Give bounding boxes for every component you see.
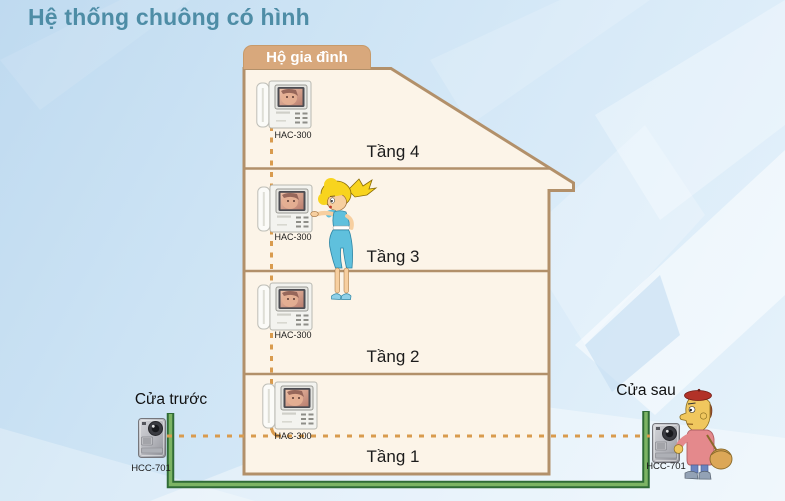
floor-label-1: Tầng 1 bbox=[367, 447, 420, 467]
door-station-hcc701-front bbox=[139, 419, 166, 458]
floor-label-3: Tầng 3 bbox=[367, 247, 420, 267]
device-label-hcc701-front: HCC-701 bbox=[131, 463, 171, 474]
intercom-hac300-floor4 bbox=[257, 81, 311, 128]
device-label-hac300-floor3: HAC-300 bbox=[274, 232, 311, 242]
back-door-label: Cửa sau bbox=[616, 382, 676, 400]
page-title: Hệ thống chuông có hình bbox=[28, 4, 310, 31]
floor-label-4: Tầng 4 bbox=[367, 142, 420, 162]
floor-label-2: Tầng 2 bbox=[367, 347, 420, 367]
device-label-hac300-floor2: HAC-300 bbox=[274, 330, 311, 340]
household-label: Hộ gia đình bbox=[243, 45, 371, 69]
front-door-label: Cửa trước bbox=[135, 391, 207, 409]
device-label-hcc701-back: HCC-701 bbox=[646, 461, 686, 472]
intercom-hac300-floor3 bbox=[258, 185, 312, 232]
door-station-hcc701-back bbox=[653, 424, 680, 463]
intercom-hac300-floor2 bbox=[258, 283, 312, 330]
diagram-canvas: Hệ thống chuông có hình Hộ gia đình Tầng… bbox=[0, 0, 785, 501]
device-label-hac300-floor1: HAC-300 bbox=[274, 431, 311, 441]
intercom-hac300-floor1 bbox=[263, 382, 317, 429]
device-label-hac300-floor4: HAC-300 bbox=[274, 130, 311, 140]
